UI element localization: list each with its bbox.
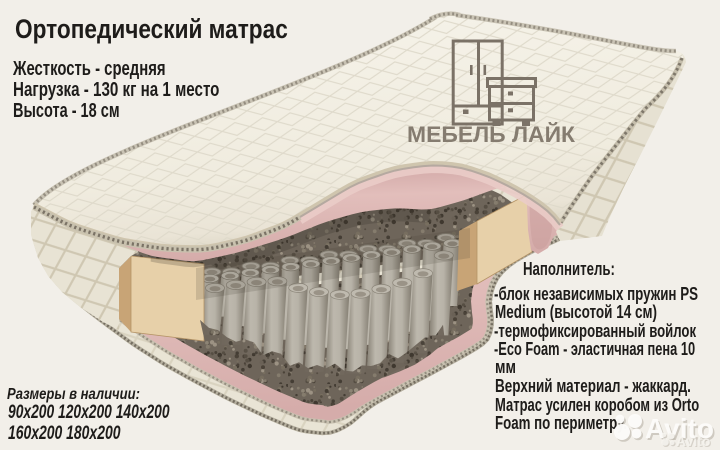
svg-text:Avito: Avito <box>676 433 710 449</box>
